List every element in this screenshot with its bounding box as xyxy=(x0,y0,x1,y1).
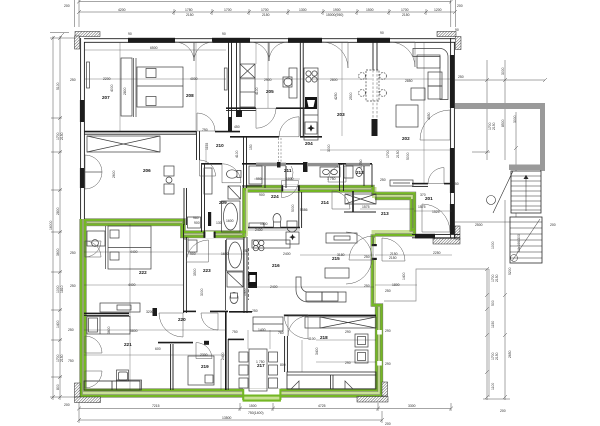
svg-text:2800: 2800 xyxy=(123,87,127,95)
svg-text:214: 214 xyxy=(321,200,329,205)
svg-text:2150: 2150 xyxy=(402,13,410,17)
svg-text:200: 200 xyxy=(385,422,391,426)
svg-text:1000: 1000 xyxy=(491,241,495,249)
svg-text:130: 130 xyxy=(216,221,222,225)
svg-text:2850: 2850 xyxy=(405,79,413,83)
svg-text:3600: 3600 xyxy=(56,248,60,256)
svg-text:2150: 2150 xyxy=(389,256,397,260)
svg-text:2150: 2150 xyxy=(495,352,499,360)
svg-text:224: 224 xyxy=(271,194,279,199)
svg-text:6500: 6500 xyxy=(150,46,158,50)
svg-text:218: 218 xyxy=(320,335,328,340)
svg-text:1 750: 1 750 xyxy=(327,177,336,181)
svg-text:2150: 2150 xyxy=(262,13,270,17)
svg-text:2400: 2400 xyxy=(221,352,225,360)
svg-text:1400: 1400 xyxy=(56,320,60,328)
svg-text:4000: 4000 xyxy=(110,84,114,92)
svg-text:1780: 1780 xyxy=(185,8,193,12)
svg-text:2150: 2150 xyxy=(492,122,496,130)
svg-text:3500: 3500 xyxy=(193,268,197,276)
svg-text:1900: 1900 xyxy=(333,8,341,12)
svg-text:250: 250 xyxy=(70,284,76,288)
svg-text:900: 900 xyxy=(259,193,265,197)
svg-text:290: 290 xyxy=(345,330,351,334)
svg-text:1700: 1700 xyxy=(261,8,269,12)
svg-text:250: 250 xyxy=(380,178,386,182)
svg-text:1200: 1200 xyxy=(434,8,442,12)
svg-text:205: 205 xyxy=(266,89,274,94)
svg-text:8500: 8500 xyxy=(501,119,505,127)
svg-text:250: 250 xyxy=(68,328,74,332)
svg-text:2500: 2500 xyxy=(475,223,483,227)
svg-text:2150: 2150 xyxy=(495,274,499,282)
svg-text:204: 204 xyxy=(305,141,313,146)
svg-text:200: 200 xyxy=(64,403,70,407)
svg-text:370: 370 xyxy=(420,193,426,197)
svg-text:201: 201 xyxy=(425,196,433,201)
svg-text:290: 290 xyxy=(385,362,391,366)
svg-text:290: 290 xyxy=(385,329,391,333)
svg-text:250: 250 xyxy=(364,284,370,288)
svg-text:210: 210 xyxy=(216,143,224,148)
svg-text:450: 450 xyxy=(234,125,240,129)
svg-text:1100: 1100 xyxy=(491,383,495,390)
svg-text:200: 200 xyxy=(64,4,70,8)
svg-text:208: 208 xyxy=(186,93,194,98)
svg-text:500: 500 xyxy=(491,300,495,306)
svg-text:250: 250 xyxy=(70,251,76,255)
svg-text:250: 250 xyxy=(453,182,459,186)
svg-text:3400: 3400 xyxy=(315,347,319,355)
svg-text:1700: 1700 xyxy=(224,8,232,12)
svg-text:250: 250 xyxy=(252,309,258,313)
svg-text:1400: 1400 xyxy=(258,328,266,332)
svg-text:790: 790 xyxy=(202,128,208,132)
svg-text:216: 216 xyxy=(272,263,280,268)
svg-text:211: 211 xyxy=(284,168,292,173)
svg-text:1575: 1575 xyxy=(418,205,426,209)
svg-text:4550: 4550 xyxy=(427,112,431,120)
svg-text:2150: 2150 xyxy=(186,13,194,17)
svg-text:207: 207 xyxy=(102,95,110,100)
svg-text:1 750: 1 750 xyxy=(256,360,265,364)
svg-text:5200: 5200 xyxy=(508,267,512,275)
svg-text:16000: 16000 xyxy=(49,220,53,230)
svg-text:290: 290 xyxy=(345,361,351,365)
svg-text:900: 900 xyxy=(194,221,200,225)
svg-text:213: 213 xyxy=(381,211,389,216)
svg-text:1300: 1300 xyxy=(299,8,307,12)
svg-text:1600: 1600 xyxy=(226,219,234,223)
svg-text:14x166/300: 14x166/300 xyxy=(517,234,521,252)
svg-text:223: 223 xyxy=(203,268,211,273)
svg-text:1700: 1700 xyxy=(401,8,409,12)
svg-text:3200: 3200 xyxy=(146,310,154,314)
svg-text:1500: 1500 xyxy=(366,8,374,12)
svg-text:90: 90 xyxy=(380,31,384,35)
svg-text:3000: 3000 xyxy=(327,144,331,152)
svg-text:1525: 1525 xyxy=(432,210,440,214)
svg-text:209: 209 xyxy=(219,200,227,205)
svg-text:2400: 2400 xyxy=(283,252,291,256)
svg-text:800: 800 xyxy=(280,363,286,367)
svg-text:2250: 2250 xyxy=(433,251,441,255)
svg-text:2500: 2500 xyxy=(349,92,353,100)
svg-text:222: 222 xyxy=(139,270,147,275)
svg-text:250: 250 xyxy=(458,75,464,79)
svg-text:600: 600 xyxy=(155,347,161,351)
svg-text:3300: 3300 xyxy=(408,404,416,408)
svg-text:219: 219 xyxy=(201,364,209,369)
svg-text:206: 206 xyxy=(143,168,151,173)
svg-text:4725: 4725 xyxy=(318,404,326,408)
svg-text:3000: 3000 xyxy=(501,67,505,75)
svg-text:3000: 3000 xyxy=(513,115,517,123)
svg-text:5800: 5800 xyxy=(130,329,138,333)
svg-text:5586: 5586 xyxy=(300,208,308,212)
svg-text:250: 250 xyxy=(243,249,249,253)
svg-text:200: 200 xyxy=(457,4,463,8)
svg-text:4100: 4100 xyxy=(255,87,259,95)
svg-text:1400: 1400 xyxy=(402,272,406,280)
svg-text:200: 200 xyxy=(500,409,506,413)
svg-text:1810: 1810 xyxy=(60,285,64,293)
svg-text:221: 221 xyxy=(124,342,132,347)
svg-text:750: 750 xyxy=(232,330,238,334)
svg-text:2800: 2800 xyxy=(330,78,338,82)
svg-text:5100: 5100 xyxy=(56,82,60,90)
svg-text:150: 150 xyxy=(249,144,253,150)
svg-text:250: 250 xyxy=(385,289,391,293)
svg-text:2600: 2600 xyxy=(112,170,116,178)
svg-text:200: 200 xyxy=(550,223,556,227)
svg-text:3000: 3000 xyxy=(200,288,204,296)
svg-text:2150: 2150 xyxy=(396,150,400,158)
svg-text:5000: 5000 xyxy=(291,204,295,212)
svg-text:1700: 1700 xyxy=(386,150,390,158)
svg-text:1135: 1135 xyxy=(205,143,209,150)
svg-text:2800: 2800 xyxy=(56,207,60,215)
svg-text:203: 203 xyxy=(337,112,345,117)
svg-text:1400: 1400 xyxy=(243,288,247,296)
svg-text:4100: 4100 xyxy=(235,150,239,158)
svg-text:960: 960 xyxy=(193,216,199,220)
svg-text:2150: 2150 xyxy=(60,132,64,140)
svg-text:1300: 1300 xyxy=(260,222,268,226)
svg-text:2650: 2650 xyxy=(508,350,512,358)
svg-text:800: 800 xyxy=(56,384,60,390)
svg-text:202: 202 xyxy=(402,136,410,141)
svg-text:212: 212 xyxy=(356,170,364,175)
svg-text:1 780: 1 780 xyxy=(359,159,363,168)
svg-text:5000: 5000 xyxy=(406,152,410,160)
svg-text:4100: 4100 xyxy=(308,337,316,341)
svg-text:1500: 1500 xyxy=(249,404,257,408)
svg-text:90: 90 xyxy=(128,32,132,36)
svg-text:750(1400): 750(1400) xyxy=(248,411,263,415)
svg-text:250: 250 xyxy=(70,78,76,82)
svg-text:1575: 1575 xyxy=(362,205,370,209)
svg-text:90: 90 xyxy=(222,32,226,36)
svg-text:750: 750 xyxy=(68,359,74,363)
svg-text:760: 760 xyxy=(278,331,284,335)
svg-text:4250: 4250 xyxy=(334,92,338,100)
svg-text:15000(950): 15000(950) xyxy=(326,13,343,17)
svg-text:4200: 4200 xyxy=(118,8,126,12)
svg-text:250: 250 xyxy=(364,255,370,259)
svg-text:7215: 7215 xyxy=(152,404,160,408)
svg-text:900: 900 xyxy=(183,237,189,241)
svg-text:220: 220 xyxy=(178,317,186,322)
svg-text:2150: 2150 xyxy=(60,354,64,362)
svg-text:1150: 1150 xyxy=(491,321,495,328)
svg-text:13500: 13500 xyxy=(222,416,232,420)
